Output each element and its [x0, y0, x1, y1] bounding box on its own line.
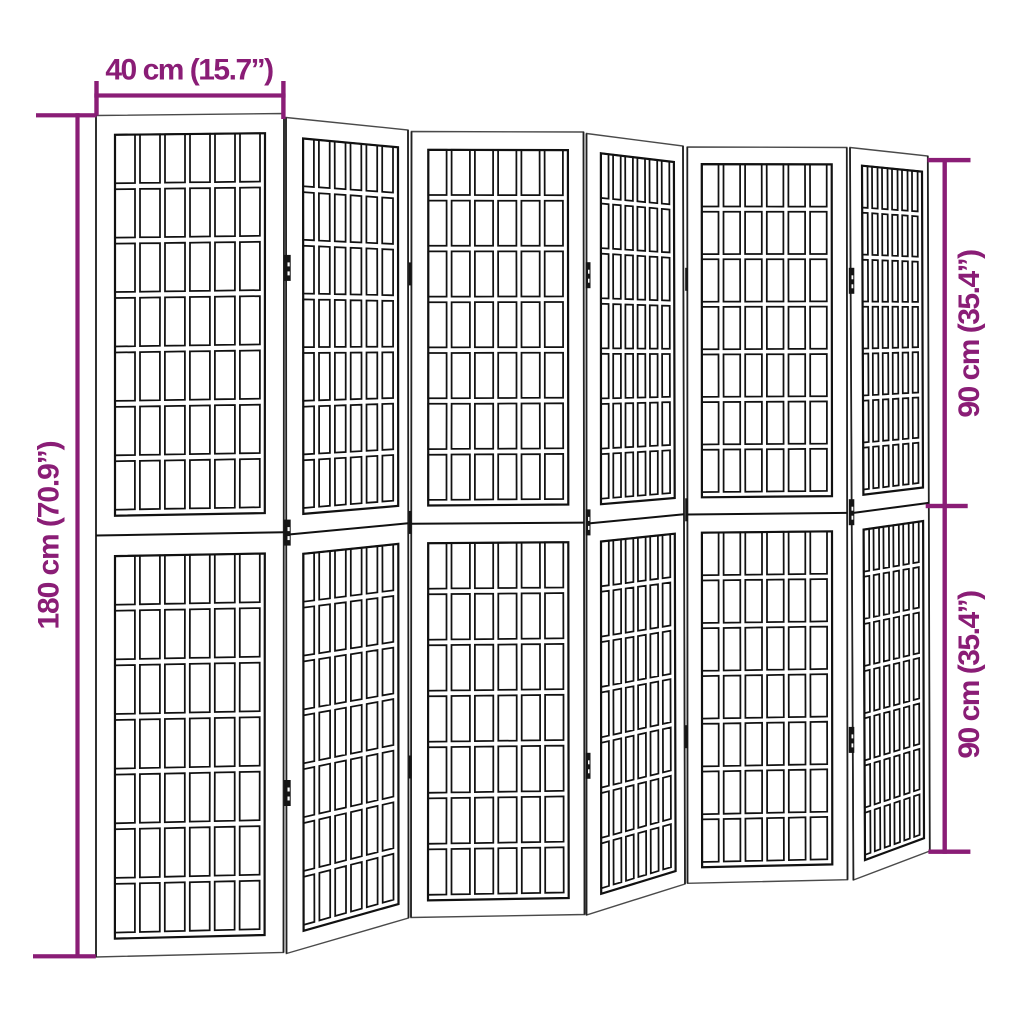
svg-text:90 cm (35.4”): 90 cm (35.4”) — [953, 591, 986, 759]
svg-text:180 cm (70.9”): 180 cm (70.9”) — [32, 441, 65, 629]
svg-text:90 cm (35.4”): 90 cm (35.4”) — [953, 250, 986, 418]
svg-text:40 cm (15.7”): 40 cm (15.7”) — [105, 54, 273, 87]
